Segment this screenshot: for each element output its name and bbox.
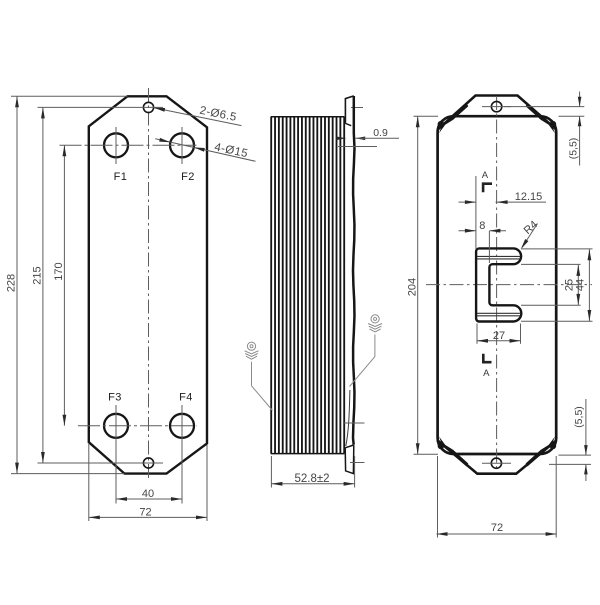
svg-text:12.15: 12.15 (515, 191, 543, 203)
svg-text:F4: F4 (179, 391, 193, 403)
svg-text:(5,5): (5,5) (568, 138, 580, 160)
svg-text:40: 40 (142, 488, 154, 500)
svg-text:72: 72 (491, 522, 503, 534)
svg-text:R4: R4 (522, 219, 540, 237)
svg-text:215: 215 (31, 266, 43, 284)
svg-text:(5,5): (5,5) (573, 406, 585, 428)
svg-text:44: 44 (575, 279, 587, 291)
svg-text:0.9: 0.9 (373, 127, 388, 139)
svg-text:A: A (482, 170, 489, 181)
svg-text:8: 8 (479, 220, 485, 232)
svg-text:72: 72 (139, 507, 151, 519)
svg-text:52.8±2: 52.8±2 (294, 473, 329, 485)
svg-text:228: 228 (5, 274, 17, 292)
svg-text:F1: F1 (114, 171, 128, 183)
svg-text:170: 170 (53, 262, 65, 280)
svg-text:204: 204 (407, 278, 419, 296)
svg-text:4-Ø15: 4-Ø15 (213, 141, 249, 160)
svg-text:F3: F3 (108, 391, 122, 403)
svg-text:F2: F2 (181, 171, 195, 183)
svg-text:27: 27 (493, 330, 505, 342)
svg-text:A: A (483, 368, 490, 379)
